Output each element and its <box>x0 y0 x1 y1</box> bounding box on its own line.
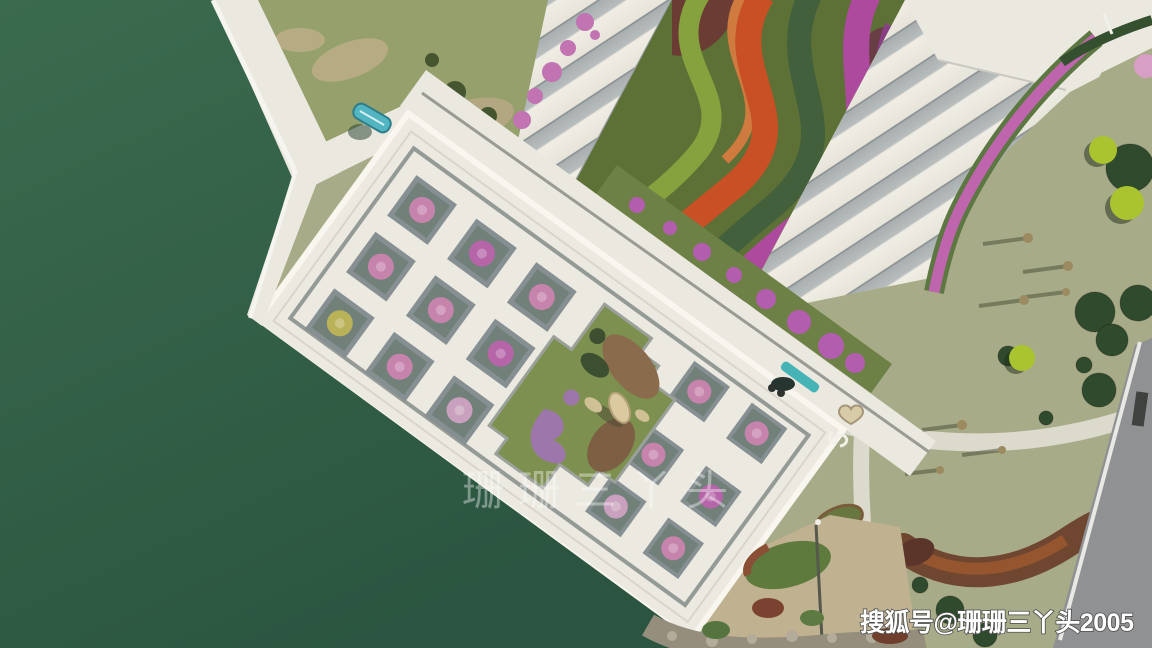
aerial-photo-lakeside-flower-plaza: 珊珊三丫头 搜狐号@珊珊三丫头2005 <box>0 0 1152 648</box>
watermark-souhu: 搜狐号@珊珊三丫头2005 <box>860 608 1134 637</box>
scene-canvas: 珊珊三丫头 搜狐号@珊珊三丫头2005 <box>0 0 1152 648</box>
watermark-center: 珊珊三丫头 <box>462 467 742 514</box>
